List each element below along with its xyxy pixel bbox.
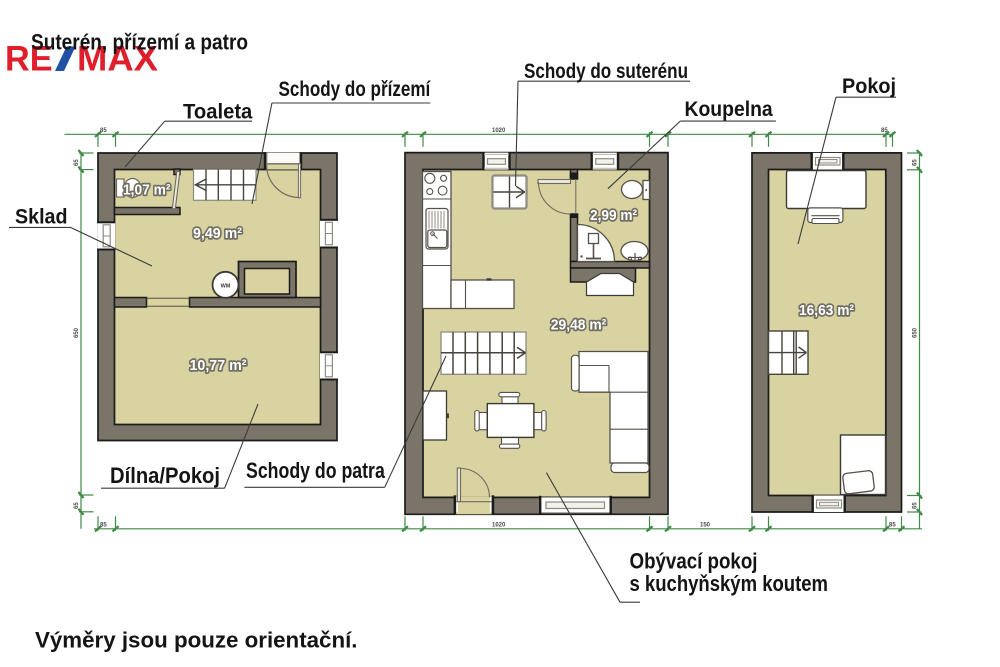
svg-text:9,49 m²: 9,49 m² [193, 225, 242, 242]
svg-text:WM: WM [221, 283, 231, 289]
svg-text:650: 650 [913, 327, 919, 338]
svg-text:1,07 m²: 1,07 m² [123, 182, 171, 199]
svg-text:85: 85 [100, 523, 107, 529]
svg-text:65: 65 [913, 502, 919, 509]
svg-text:65: 65 [74, 159, 80, 166]
svg-text:Schody do přízemí: Schody do přízemí [279, 78, 432, 101]
svg-text:Obývací pokoj: Obývací pokoj [630, 549, 758, 574]
svg-text:1020: 1020 [492, 523, 506, 529]
svg-text:Schody do patra: Schody do patra [246, 458, 385, 483]
svg-text:29,48 m²: 29,48 m² [551, 317, 607, 334]
svg-text:Toaleta: Toaleta [183, 101, 253, 124]
svg-text:10,77 m²: 10,77 m² [190, 357, 247, 374]
svg-text:s kuchyňským koutem: s kuchyňským koutem [630, 571, 829, 596]
svg-text:65: 65 [74, 502, 80, 509]
svg-text:650: 650 [74, 327, 80, 338]
svg-text:85: 85 [100, 128, 107, 134]
svg-text:Pokoj: Pokoj [842, 75, 896, 98]
svg-text:85: 85 [881, 128, 888, 134]
svg-text:Koupelna: Koupelna [685, 98, 773, 121]
svg-text:1020: 1020 [492, 128, 506, 134]
svg-text:150: 150 [700, 523, 711, 529]
svg-text:Schody do suterénu: Schody do suterénu [524, 60, 688, 83]
svg-text:85: 85 [889, 523, 896, 529]
svg-text:Dílna/Pokoj: Dílna/Pokoj [110, 463, 220, 488]
svg-text:16,63 m²: 16,63 m² [799, 302, 854, 319]
svg-text:Sklad: Sklad [15, 206, 68, 229]
svg-text:2,99 m²: 2,99 m² [590, 207, 637, 224]
svg-text:65: 65 [913, 159, 919, 166]
svg-text:Výměry jsou pouze orientační.: Výměry jsou pouze orientační. [35, 627, 358, 652]
svg-text:Suterén, přízemí a patro: Suterén, přízemí a patro [31, 29, 248, 54]
